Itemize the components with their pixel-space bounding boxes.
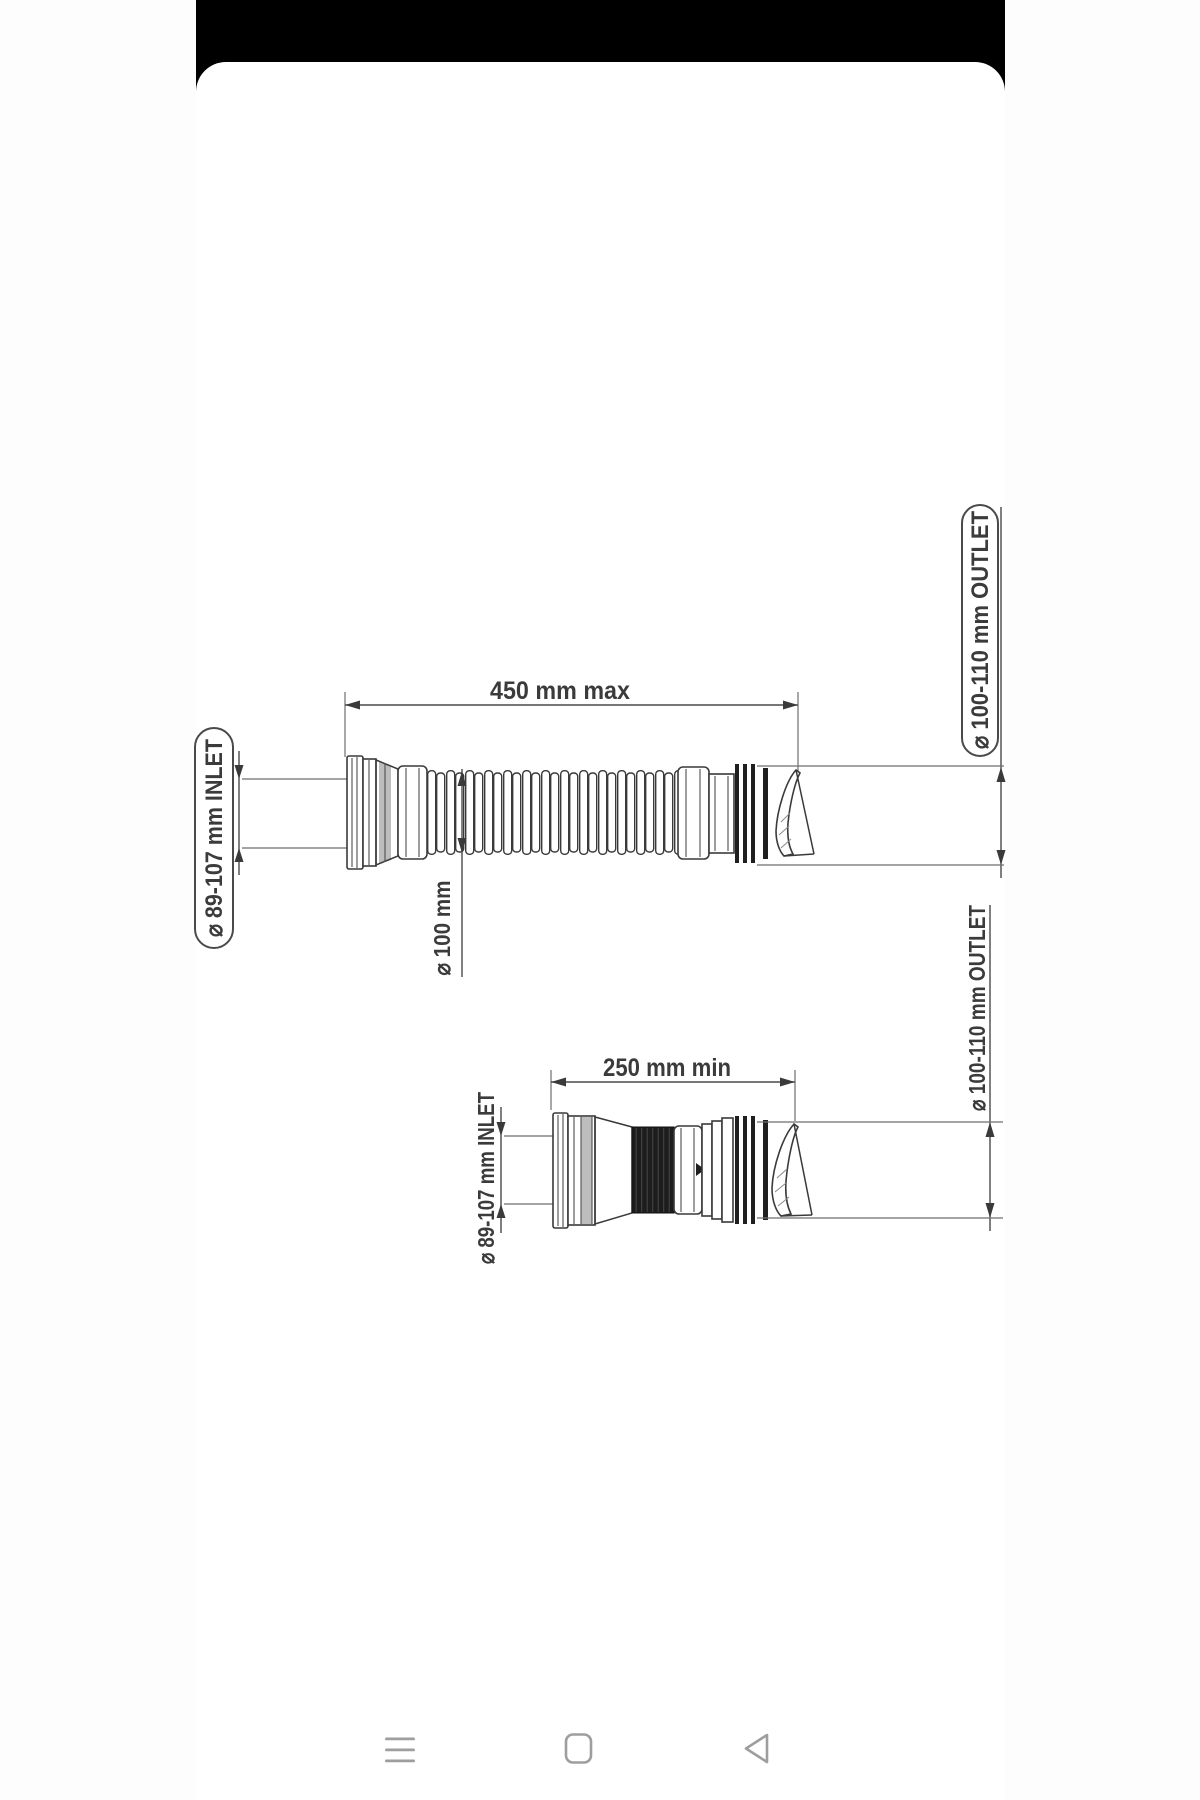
dimension-inlet-bottom <box>497 1107 558 1233</box>
phone-screenshot: { "colors": { "statusbar": "#000000", "c… <box>0 0 1200 1800</box>
extended-view-drawing: 450 mm max ⌀ 89-107 mm INLET <box>195 505 1006 977</box>
pan-connector-technical-drawing: 450 mm max ⌀ 89-107 mm INLET <box>0 0 1200 1800</box>
outlet-horn <box>776 770 814 856</box>
back-triangle-icon <box>739 1731 775 1767</box>
home-square-icon <box>561 1731 597 1767</box>
pipe-extended <box>347 756 814 869</box>
dimension-inlet-top <box>235 751 350 875</box>
outlet-label: ⌀ 100-110 mm OUTLET <box>967 511 994 749</box>
pipe-compressed <box>553 1113 812 1228</box>
hamburger-menu-icon <box>382 1731 418 1767</box>
inlet-label: ⌀ 89-107 mm INLET <box>201 739 228 937</box>
inlet-label-bottom: ⌀ 89-107 mm INLET <box>473 1092 499 1264</box>
compressed-bellows <box>632 1127 674 1213</box>
nav-menu-button[interactable] <box>370 1719 430 1779</box>
outlet-label-bottom: ⌀ 100-110 mm OUTLET <box>964 905 990 1111</box>
nav-back-button[interactable] <box>727 1719 787 1779</box>
dimension-250mm: 250 mm min <box>551 1054 795 1121</box>
nav-home-button[interactable] <box>549 1719 609 1779</box>
length-min-label: 250 mm min <box>603 1054 731 1082</box>
tube-diameter-label: ⌀ 100 mm <box>429 881 455 976</box>
compressed-view-drawing: 250 mm min ⌀ 89-107 mm INLET <box>473 905 1003 1264</box>
length-max-label: 450 mm max <box>490 677 630 705</box>
dimension-450mm: 450 mm max <box>345 677 798 771</box>
outlet-horn-bottom <box>772 1124 812 1216</box>
